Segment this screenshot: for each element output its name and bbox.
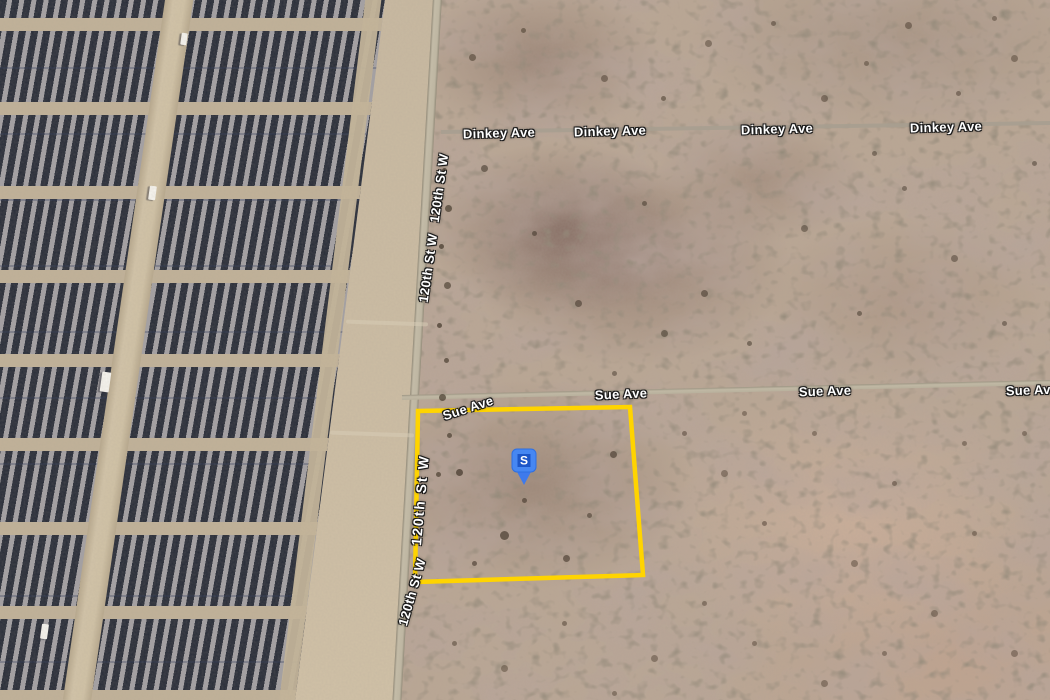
parcel-pin-marker[interactable]: S [510, 448, 538, 488]
pin-tail [517, 471, 532, 485]
road-label-sue-ave-4: Sue Ave [1006, 382, 1050, 399]
road-label-sue-ave-2: Sue Ave [594, 385, 647, 402]
pin-label: S [520, 454, 528, 468]
road-label-dinkey-ave-3: Dinkey Ave [741, 121, 814, 138]
road-label-dinkey-ave-4: Dinkey Ave [910, 119, 983, 136]
parcel-boundary [0, 0, 1050, 700]
satellite-map[interactable]: S Dinkey Ave Dinkey Ave Dinkey Ave Dinke… [0, 0, 1050, 700]
parcel-outline [415, 407, 643, 582]
road-label-sue-ave-3: Sue Ave [799, 383, 852, 400]
road-label-dinkey-ave-1: Dinkey Ave [463, 125, 536, 142]
road-label-dinkey-ave-2: Dinkey Ave [574, 123, 647, 140]
